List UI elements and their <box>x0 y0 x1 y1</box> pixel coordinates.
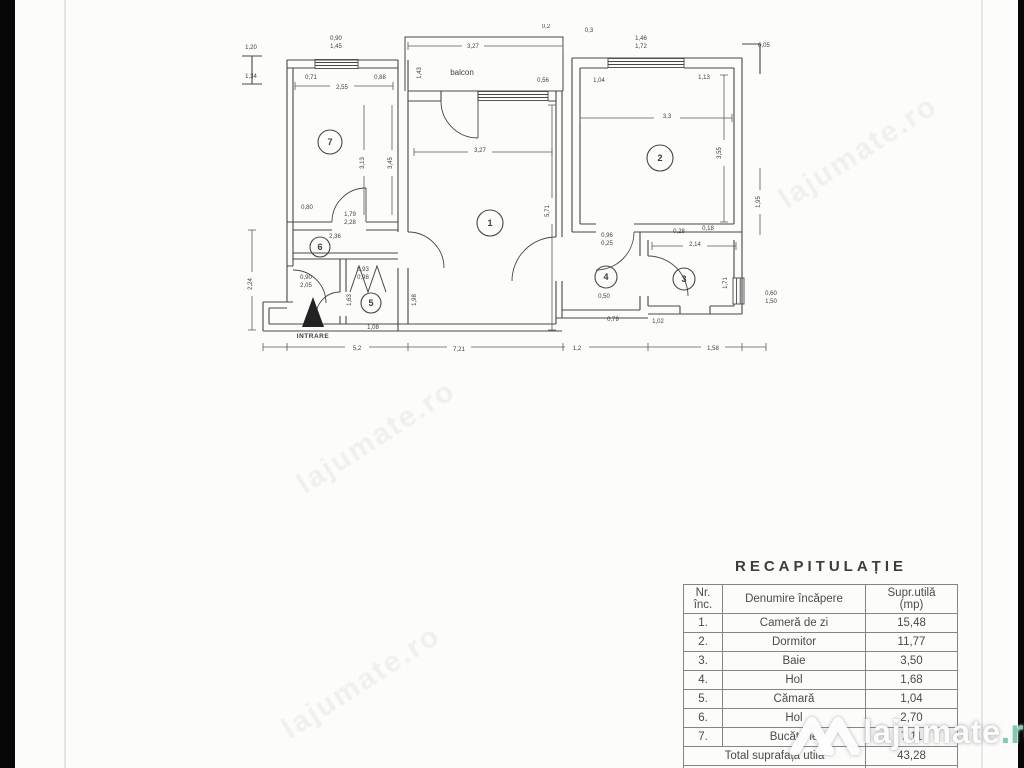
cell-total-value: 43,28 <box>866 747 958 766</box>
room-number-7: 7 <box>327 137 332 147</box>
cell-room-name: Dormitor <box>723 633 866 652</box>
cell-nr: 3. <box>684 652 723 671</box>
recap-header-nr: Nr. înc. <box>684 585 723 614</box>
cell-room-name: Hol <box>723 671 866 690</box>
dim-label: 1,46 <box>635 36 647 42</box>
cell-nr: 4. <box>684 671 723 690</box>
table-row: 7.Bucătărie7,11 <box>684 728 958 747</box>
table-row: 2.Dormitor11,77 <box>684 633 958 652</box>
dim-label: 1,02 <box>652 319 664 325</box>
entrance-label: INTRARE <box>297 333 330 340</box>
cell-room-name: Cămară <box>723 690 866 709</box>
cell-nr: 2. <box>684 633 723 652</box>
cell-area: 7,11 <box>866 728 958 747</box>
dim-label: 5,2 <box>353 346 362 352</box>
room-number-3: 3 <box>681 274 686 284</box>
balcony-label: balcon <box>450 68 474 77</box>
dimension-labels: 3,270,901,451,201,340,710,882,551,430,56… <box>245 24 777 353</box>
dim-label: 3,55 <box>717 147 723 159</box>
cell-room-name: Bucătărie <box>723 728 866 747</box>
table-row: 4.Hol1,68 <box>684 671 958 690</box>
dimension-lines <box>248 42 766 351</box>
dim-label: 2,28 <box>344 220 356 226</box>
dim-label: 1,34 <box>245 74 257 80</box>
scanned-floorplan-page: balcon INTRARE 1234567 3,270,901,451,201… <box>0 0 1024 768</box>
dim-label: 3,13 <box>360 157 366 169</box>
dim-label: 7,21 <box>453 347 465 353</box>
cell-nr: 6. <box>684 709 723 728</box>
cell-area: 15,48 <box>866 614 958 633</box>
recap-header-area: Supr.utilă (mp) <box>866 585 958 614</box>
dim-label: 0,50 <box>598 294 610 300</box>
recap-title: RECAPITULAȚIE <box>683 558 959 575</box>
dim-label: 1,98 <box>412 294 418 306</box>
dim-label: 0,90 <box>300 275 312 281</box>
cell-area: 11,77 <box>866 633 958 652</box>
dim-label: 0,96 <box>601 233 613 239</box>
dim-label: 1,79 <box>344 212 356 218</box>
dim-label: 0,93 <box>357 267 369 273</box>
dim-label: 3,45 <box>388 157 394 169</box>
cell-area: 1,68 <box>866 671 958 690</box>
cell-total-label: Total suprafață utilă <box>684 747 866 766</box>
room-number-4: 4 <box>603 272 608 282</box>
cell-area: 1,04 <box>866 690 958 709</box>
dim-label: 1,72 <box>635 44 647 50</box>
recap-table: Nr. înc. Denumire încăpere Supr.utilă (m… <box>683 584 958 768</box>
room-number-2: 2 <box>657 153 662 163</box>
dim-label: 3,27 <box>467 44 479 50</box>
table-row: 5.Cămară1,04 <box>684 690 958 709</box>
dim-label: 3,27 <box>474 148 486 154</box>
table-row: 3.Baie3,50 <box>684 652 958 671</box>
dim-label: 1,04 <box>593 78 605 84</box>
table-total-row: Total suprafață utilă43,28 <box>684 747 958 766</box>
dim-label: 1,13 <box>698 75 710 81</box>
cell-area: 2,70 <box>866 709 958 728</box>
dim-label: 1,63 <box>347 294 353 306</box>
recap-header-row: Nr. înc. Denumire încăpere Supr.utilă (m… <box>684 585 958 614</box>
dim-label: 3,3 <box>663 114 672 120</box>
dim-label: 2,24 <box>248 278 254 290</box>
dim-label: 0,25 <box>601 241 613 247</box>
dim-label: 2,14 <box>689 242 701 248</box>
room-number-6: 6 <box>317 242 322 252</box>
table-row: 6.Hol2,70 <box>684 709 958 728</box>
dim-label: 0,05 <box>758 43 770 49</box>
cell-nr: 1. <box>684 614 723 633</box>
dim-label: 0,88 <box>374 75 386 81</box>
cell-nr: 7. <box>684 728 723 747</box>
dim-label: 0,71 <box>305 75 317 81</box>
dim-label: 1,2 <box>573 346 582 352</box>
recap-header-name: Denumire încăpere <box>723 585 866 614</box>
dim-label: 0,60 <box>765 291 777 297</box>
dim-label: 0,79 <box>607 317 619 323</box>
dim-label: 5,71 <box>545 205 551 217</box>
room-number-1: 1 <box>487 218 492 228</box>
room-number-5: 5 <box>368 298 373 308</box>
dim-label: 0,28 <box>673 229 685 235</box>
door-arcs <box>293 101 688 316</box>
cell-area: 3,50 <box>866 652 958 671</box>
dim-label: 0,2 <box>542 24 551 30</box>
cell-nr: 5. <box>684 690 723 709</box>
dim-label: 1,95 <box>756 196 762 208</box>
cell-room-name: Hol <box>723 709 866 728</box>
dim-label: 0,80 <box>301 205 313 211</box>
cell-room-name: Baie <box>723 652 866 671</box>
dim-label: 1,43 <box>417 67 423 79</box>
dim-label: 0,56 <box>537 78 549 84</box>
dim-label: 0,98 <box>357 275 369 281</box>
cell-room-name: Cameră de zi <box>723 614 866 633</box>
dim-label: 2,05 <box>300 283 312 289</box>
dim-label: 1,50 <box>765 299 777 305</box>
dim-label: 2,55 <box>336 85 348 91</box>
dim-label: 0,3 <box>585 28 594 34</box>
dim-label: 1,20 <box>245 45 257 51</box>
dim-label: 1,08 <box>367 325 379 331</box>
dim-label: 0,18 <box>702 226 714 232</box>
dim-label: 1,71 <box>723 277 729 289</box>
recap-table-section: RECAPITULAȚIE Nr. înc. Denumire încăpere… <box>683 558 959 768</box>
walls <box>242 37 760 331</box>
table-row: 1.Cameră de zi15,48 <box>684 614 958 633</box>
dim-label: 2,36 <box>329 234 341 240</box>
dim-label: 1,58 <box>707 346 719 352</box>
dim-label: 1,45 <box>330 44 342 50</box>
windows <box>315 59 744 305</box>
dim-label: 0,90 <box>330 36 342 42</box>
